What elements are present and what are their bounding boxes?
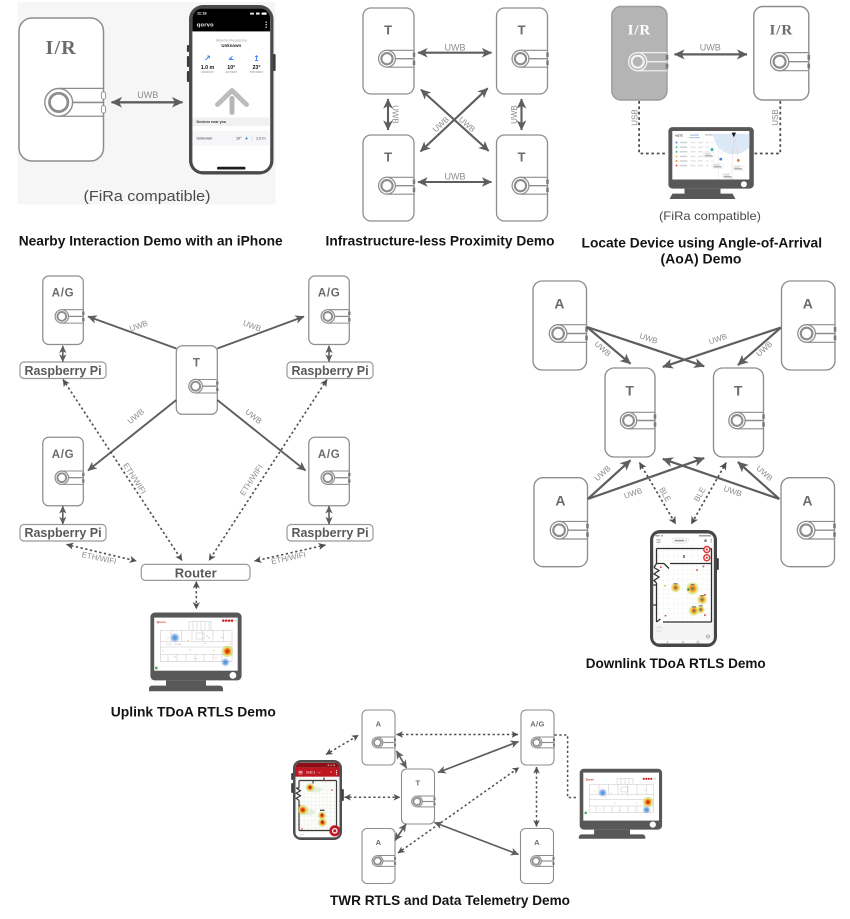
svg-text:Grid 1: Grid 1: [306, 771, 315, 775]
svg-text:Locate Device using Angle-of-A: Locate Device using Angle-of-Arrival: [582, 235, 823, 251]
svg-text:I/R: I/R: [46, 37, 77, 59]
svg-text:A/G: A/G: [318, 449, 341, 461]
svg-text:Infrastructure-less Proximity: Infrastructure-less Proximity Demo: [326, 233, 555, 249]
svg-text:A: A: [376, 838, 382, 847]
svg-text:I/R: I/R: [628, 22, 652, 38]
svg-text:elevation: elevation: [250, 70, 263, 74]
svg-text:UWB: UWB: [445, 172, 466, 182]
svg-text:A: A: [555, 492, 566, 508]
svg-text:Unknown: Unknown: [221, 43, 241, 48]
svg-text:(FiRa compatible): (FiRa compatible): [659, 209, 761, 223]
svg-text:Selected Accessory: Selected Accessory: [216, 38, 248, 42]
svg-text:azimuth: azimuth: [226, 70, 238, 74]
svg-text:UWB: UWB: [445, 43, 466, 53]
svg-text:distance: distance: [201, 70, 213, 74]
svg-text:A: A: [554, 296, 565, 312]
svg-text:1.0 m: 1.0 m: [256, 137, 266, 141]
svg-text:Unknown: Unknown: [197, 137, 213, 141]
svg-text:Qorvo: Qorvo: [586, 778, 595, 782]
svg-text:10°: 10°: [236, 137, 242, 141]
svg-text:qorvo: qorvo: [197, 23, 214, 29]
svg-text:T: T: [384, 149, 393, 164]
svg-text:Uplink TDoA RTLS Demo: Uplink TDoA RTLS Demo: [111, 704, 276, 720]
svg-text:Raspberry Pi: Raspberry Pi: [291, 364, 368, 378]
svg-text:(FiRa compatible): (FiRa compatible): [84, 188, 211, 205]
svg-text:T: T: [384, 22, 393, 37]
svg-text:A: A: [802, 492, 813, 508]
svg-text:T: T: [625, 383, 634, 399]
svg-text:Downlink TDoA RTLS Demo: Downlink TDoA RTLS Demo: [586, 655, 766, 671]
svg-text:Devices near you: Devices near you: [197, 120, 227, 124]
svg-text:UWB: UWB: [700, 42, 721, 52]
svg-text:UWB: UWB: [510, 105, 519, 124]
svg-text:A/G: A/G: [318, 288, 341, 300]
svg-text:Qorvo: Qorvo: [157, 620, 166, 624]
svg-text:A/G: A/G: [530, 720, 545, 729]
svg-text:AQTS: AQTS: [675, 134, 683, 138]
svg-text:UWB: UWB: [137, 90, 158, 100]
svg-text:T: T: [734, 383, 743, 399]
svg-text:|: |: [252, 137, 253, 141]
svg-text:Nearby Interaction Demo with a: Nearby Interaction Demo with an iPhone: [19, 233, 283, 249]
svg-text:I/R: I/R: [770, 22, 794, 38]
svg-text:T: T: [518, 22, 527, 37]
svg-text:A/G: A/G: [52, 449, 75, 461]
svg-text:(AoA) Demo: (AoA) Demo: [661, 251, 742, 267]
svg-text:Router: Router: [175, 565, 217, 580]
svg-text:A: A: [803, 296, 814, 312]
svg-text:Raspberry Pi: Raspberry Pi: [291, 526, 368, 540]
svg-text:11:18: 11:18: [197, 12, 207, 16]
svg-text:Raspberry Pi: Raspberry Pi: [24, 364, 101, 378]
svg-text:A: A: [534, 838, 540, 847]
svg-text:A: A: [376, 720, 382, 729]
svg-text:T: T: [518, 149, 527, 164]
svg-text:USB: USB: [630, 109, 639, 125]
svg-text:TWR RTLS and Data Telemetry De: TWR RTLS and Data Telemetry Demo: [330, 892, 570, 908]
svg-text:T: T: [416, 779, 421, 788]
svg-text:T: T: [193, 357, 201, 369]
svg-text:Raspberry Pi: Raspberry Pi: [24, 526, 101, 540]
svg-text:A/G: A/G: [52, 288, 75, 300]
svg-text:UWB: UWB: [390, 105, 399, 124]
svg-text:USB: USB: [771, 109, 780, 125]
